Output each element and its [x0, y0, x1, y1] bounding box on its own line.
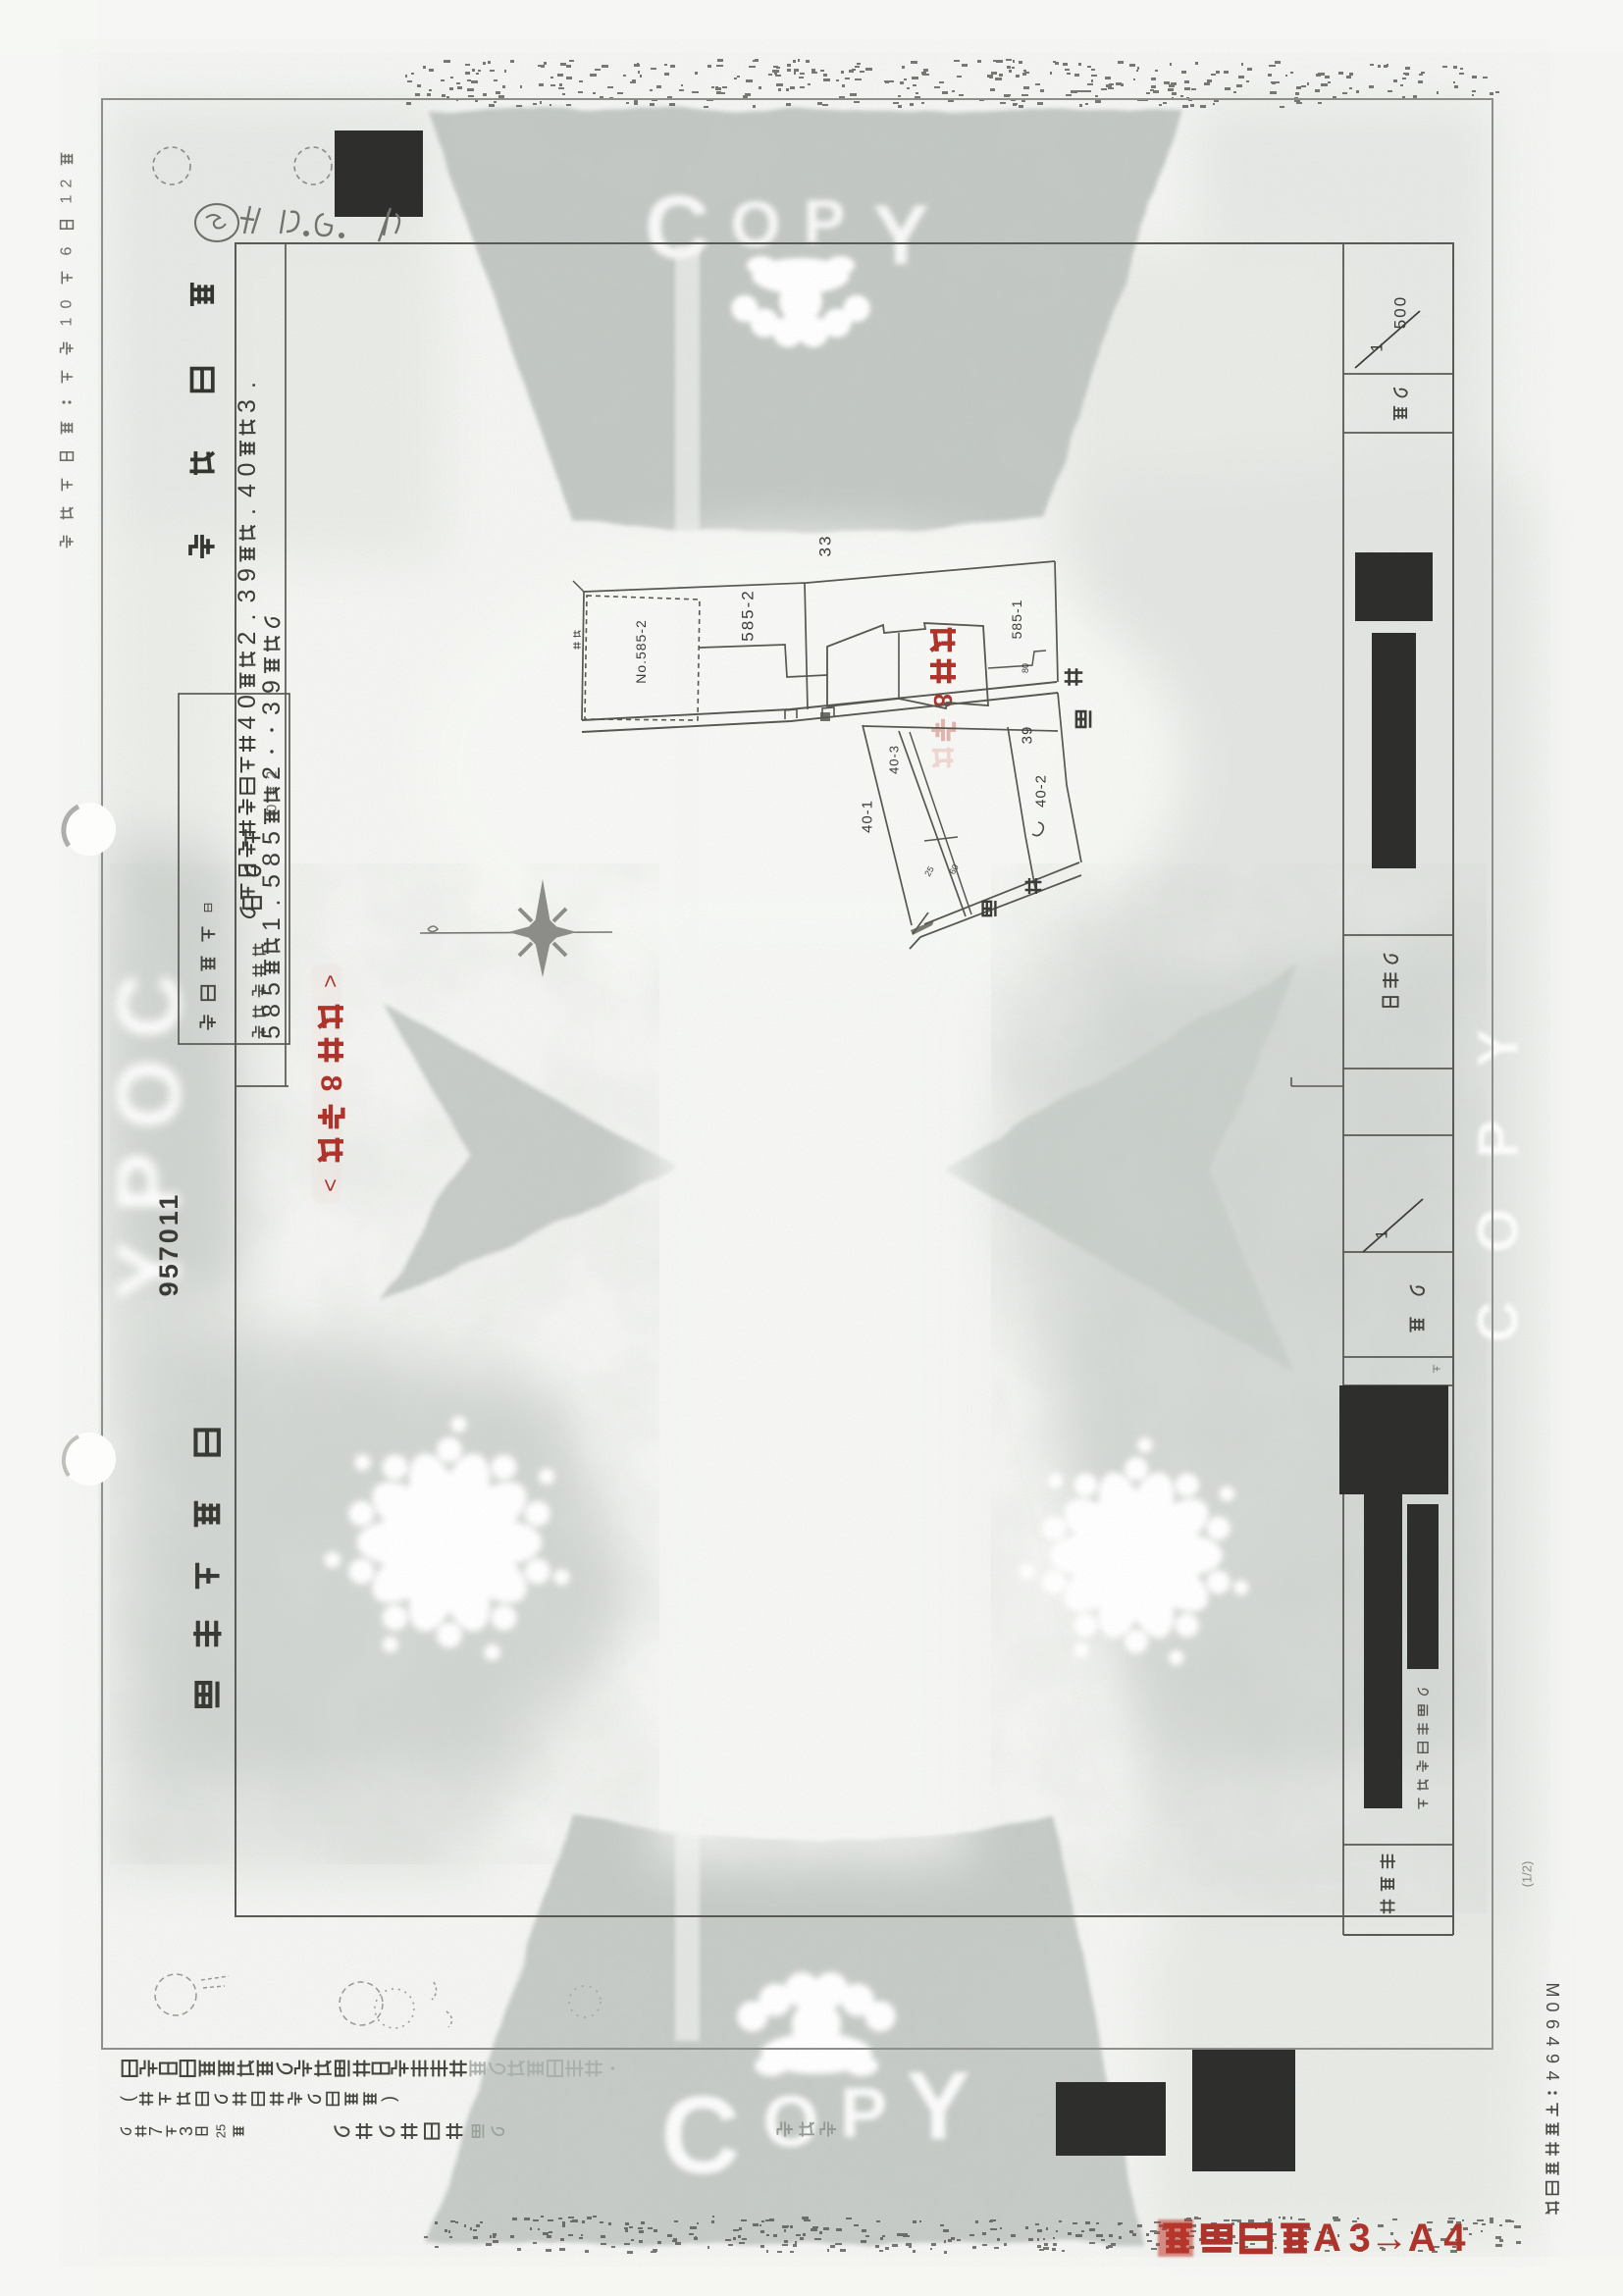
svg-text:2: 2 [258, 766, 286, 780]
svg-text:4: 4 [234, 715, 261, 729]
svg-text:3: 3 [258, 702, 286, 715]
svg-text:4: 4 [1543, 2070, 1562, 2080]
svg-text:80: 80 [1021, 663, 1030, 673]
svg-text:8: 8 [258, 1004, 286, 1018]
svg-text:0: 0 [1543, 2002, 1562, 2011]
svg-text:3: 3 [234, 590, 261, 603]
svg-text:6: 6 [59, 246, 76, 255]
svg-text:3: 3 [177, 2126, 196, 2136]
svg-text:40-3: 40-3 [887, 745, 902, 774]
svg-text:.: . [234, 614, 261, 621]
svg-text:7: 7 [146, 2126, 166, 2136]
svg-text:5: 5 [258, 831, 286, 845]
svg-text:0: 0 [234, 695, 261, 708]
svg-text:>: > [318, 1178, 343, 1191]
svg-text:): ) [379, 2096, 398, 2102]
svg-text:.: . [234, 508, 261, 515]
svg-text:1: 1 [59, 194, 76, 203]
svg-text:8: 8 [315, 1075, 347, 1092]
svg-text:1: 1 [59, 317, 76, 326]
svg-text:2: 2 [59, 179, 76, 187]
svg-text:33: 33 [816, 535, 835, 557]
svg-text:957011: 957011 [154, 1192, 183, 1297]
svg-text:A 3→A 4: A 3→A 4 [1313, 2217, 1466, 2260]
svg-text:4: 4 [1543, 2036, 1562, 2046]
svg-text:8: 8 [258, 853, 286, 866]
svg-text:1: 1 [258, 917, 286, 931]
svg-text:9: 9 [258, 680, 286, 694]
svg-text:(: ( [118, 2096, 137, 2102]
svg-text:39: 39 [1020, 726, 1036, 745]
svg-text:5: 5 [258, 1025, 286, 1039]
svg-text:40-1: 40-1 [860, 800, 876, 833]
svg-text:6: 6 [1543, 2019, 1562, 2029]
svg-text:5: 5 [258, 982, 286, 996]
svg-text:9: 9 [1543, 2054, 1562, 2063]
svg-text:25: 25 [214, 2124, 229, 2138]
svg-text:5: 5 [258, 874, 286, 888]
svg-text:585-2: 585-2 [739, 589, 758, 641]
svg-text:4: 4 [234, 484, 261, 497]
svg-text:0: 0 [234, 463, 261, 477]
svg-text:3: 3 [234, 399, 261, 413]
svg-text:585-1: 585-1 [1009, 600, 1024, 640]
svg-text:(1/2): (1/2) [1520, 1861, 1535, 1888]
svg-text:<: < [318, 974, 343, 987]
svg-text:9: 9 [234, 568, 261, 582]
svg-text:M: M [1543, 1983, 1562, 1998]
svg-text:500: 500 [1391, 295, 1410, 329]
svg-text:0: 0 [59, 299, 76, 308]
svg-text:.: . [258, 900, 286, 907]
svg-text:.: . [234, 382, 261, 389]
svg-text:40-2: 40-2 [1033, 774, 1050, 808]
svg-text:No.585-2: No.585-2 [633, 619, 649, 684]
svg-text:2: 2 [234, 632, 261, 646]
